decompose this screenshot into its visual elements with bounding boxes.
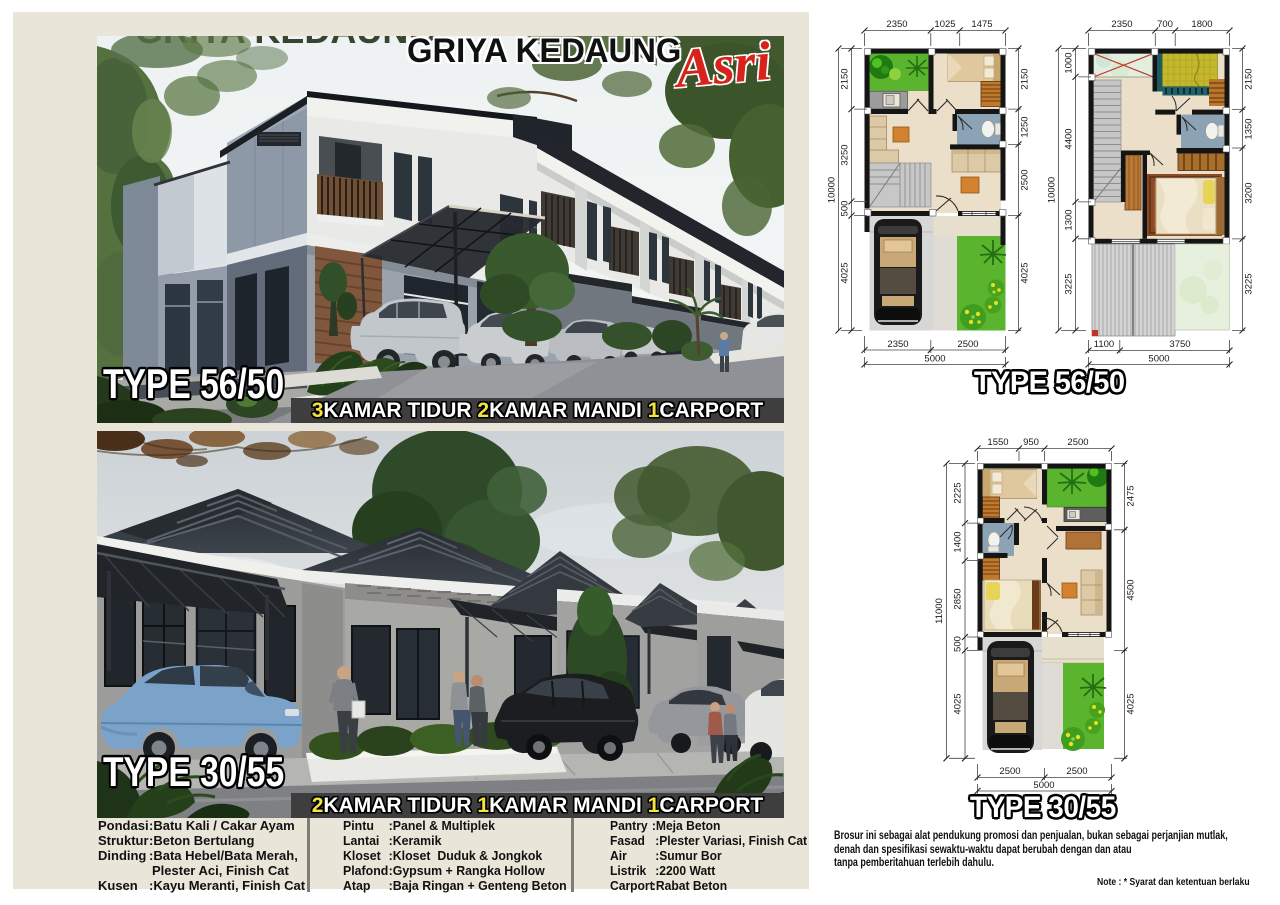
svg-text:5000: 5000: [924, 354, 945, 365]
svg-text:4025: 4025: [840, 262, 851, 283]
svg-text:1550: 1550: [987, 438, 1008, 448]
svg-text:1025: 1025: [934, 19, 955, 30]
svg-text:1000: 1000: [1064, 52, 1075, 73]
svg-text:700: 700: [1157, 19, 1173, 30]
svg-text:2150: 2150: [1020, 68, 1031, 89]
svg-text:2500: 2500: [999, 766, 1020, 777]
svg-text:2350: 2350: [887, 339, 908, 350]
svg-text:4025: 4025: [1020, 262, 1031, 283]
svg-text:4400: 4400: [1064, 128, 1075, 149]
svg-text:1400: 1400: [953, 531, 964, 552]
svg-text:5000: 5000: [1148, 354, 1169, 365]
svg-text:1350: 1350: [1244, 118, 1255, 139]
svg-text:500: 500: [840, 201, 851, 217]
svg-text:5000: 5000: [1033, 780, 1054, 791]
svg-text:2150: 2150: [1244, 68, 1255, 89]
svg-text:10000: 10000: [827, 177, 838, 203]
svg-text:3250: 3250: [840, 144, 851, 165]
svg-text:1800: 1800: [1191, 19, 1212, 30]
svg-text:11000: 11000: [934, 598, 945, 624]
svg-text:2500: 2500: [957, 339, 978, 350]
svg-text:2350: 2350: [1111, 19, 1132, 30]
svg-text:10000: 10000: [1047, 177, 1058, 203]
svg-text:3225: 3225: [1244, 273, 1255, 294]
svg-text:2150: 2150: [840, 68, 851, 89]
svg-text:2500: 2500: [1067, 438, 1088, 448]
svg-text:2225: 2225: [953, 482, 964, 503]
svg-text:2475: 2475: [1126, 485, 1137, 506]
svg-text:4025: 4025: [953, 693, 964, 714]
svg-text:3750: 3750: [1169, 339, 1190, 350]
svg-text:950: 950: [1023, 438, 1039, 448]
svg-text:2350: 2350: [886, 19, 907, 30]
svg-text:1100: 1100: [1094, 339, 1114, 350]
svg-text:1475: 1475: [971, 19, 992, 30]
svg-text:3200: 3200: [1244, 182, 1255, 203]
svg-text:2500: 2500: [1020, 169, 1031, 190]
svg-text:2500: 2500: [1066, 766, 1087, 777]
svg-text:2850: 2850: [953, 588, 964, 609]
svg-text:1300: 1300: [1064, 209, 1075, 230]
svg-text:500: 500: [953, 636, 964, 652]
svg-text:4025: 4025: [1126, 693, 1137, 714]
svg-text:1250: 1250: [1020, 116, 1031, 137]
svg-text:4500: 4500: [1126, 579, 1137, 600]
svg-text:3225: 3225: [1064, 273, 1075, 294]
